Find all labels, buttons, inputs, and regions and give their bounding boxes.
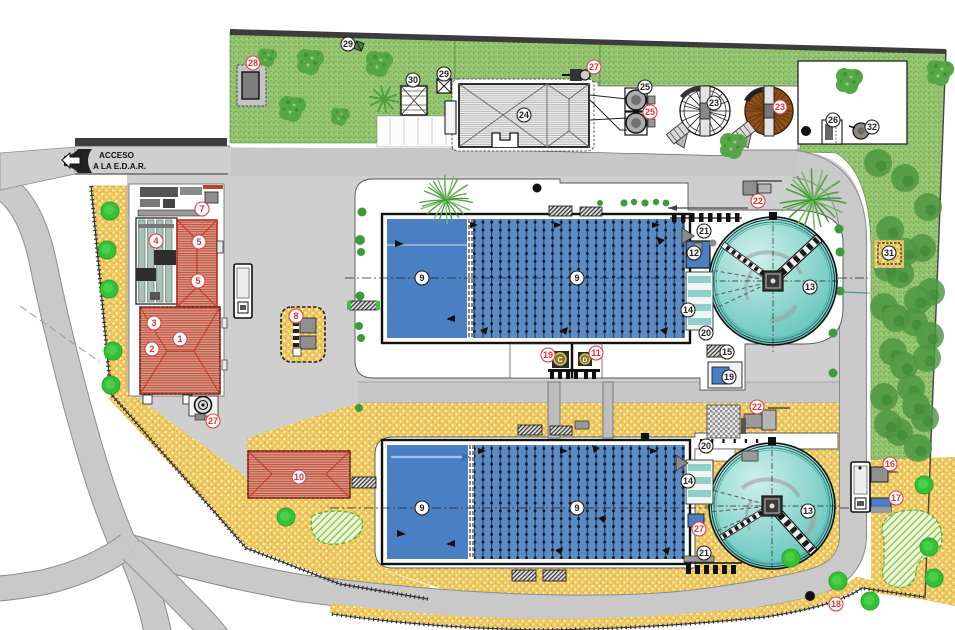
svg-text:A LA E.D.A.R.: A LA E.D.A.R.: [93, 162, 146, 171]
svg-text:28: 28: [248, 58, 258, 68]
svg-text:8: 8: [293, 311, 298, 321]
svg-text:20: 20: [701, 441, 711, 451]
svg-text:25: 25: [645, 107, 655, 117]
svg-text:17: 17: [891, 493, 901, 503]
svg-text:27: 27: [589, 62, 599, 72]
svg-text:14: 14: [683, 476, 693, 486]
svg-text:5: 5: [196, 237, 201, 247]
svg-text:10: 10: [294, 472, 304, 482]
svg-text:21: 21: [699, 226, 709, 236]
svg-text:11: 11: [591, 348, 601, 358]
svg-text:21: 21: [699, 548, 709, 558]
svg-text:18: 18: [831, 599, 841, 609]
svg-text:13: 13: [805, 282, 815, 292]
svg-text:30: 30: [408, 75, 418, 85]
svg-text:15: 15: [722, 347, 732, 357]
svg-text:9: 9: [574, 503, 579, 513]
svg-text:24: 24: [519, 110, 529, 120]
svg-text:9: 9: [574, 273, 579, 283]
svg-text:27: 27: [208, 416, 218, 426]
svg-text:13: 13: [803, 506, 813, 516]
svg-text:23: 23: [775, 102, 785, 112]
svg-text:26: 26: [828, 115, 838, 125]
svg-text:9: 9: [419, 503, 424, 513]
svg-text:25: 25: [640, 82, 650, 92]
svg-text:C: C: [557, 357, 562, 364]
svg-text:5: 5: [195, 276, 200, 286]
svg-text:12: 12: [689, 248, 699, 258]
svg-text:29: 29: [439, 69, 449, 79]
svg-text:9: 9: [419, 273, 424, 283]
svg-text:31: 31: [884, 248, 894, 258]
svg-text:D: D: [583, 357, 588, 364]
svg-text:1: 1: [177, 334, 182, 344]
svg-text:16: 16: [885, 459, 895, 469]
svg-text:7: 7: [199, 204, 204, 214]
svg-text:19: 19: [543, 350, 553, 360]
svg-text:32: 32: [867, 122, 877, 132]
svg-text:14: 14: [683, 305, 693, 315]
svg-text:2: 2: [149, 344, 154, 354]
svg-text:4: 4: [153, 236, 158, 246]
svg-text:23: 23: [709, 98, 719, 108]
svg-text:ACCESO: ACCESO: [99, 151, 135, 160]
svg-text:20: 20: [701, 328, 711, 338]
svg-text:29: 29: [343, 39, 353, 49]
svg-text:19: 19: [724, 372, 734, 382]
svg-text:27: 27: [694, 524, 704, 534]
svg-text:3: 3: [151, 318, 156, 328]
svg-text:22: 22: [753, 196, 763, 206]
svg-text:22: 22: [752, 402, 762, 412]
